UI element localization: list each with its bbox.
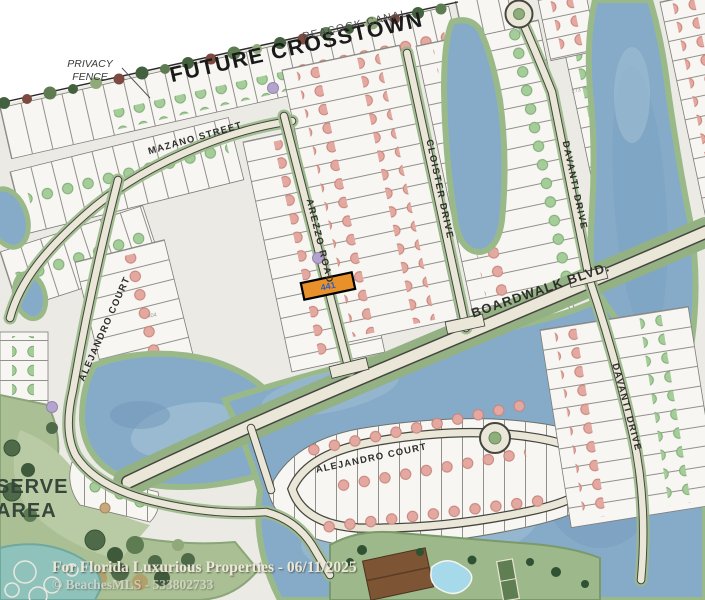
watermark-line2: © BeachesMLS - 533802733 bbox=[52, 577, 213, 592]
watermark-line1: For Florida Luxurious Properties - 06/11… bbox=[52, 559, 357, 576]
cul-de-sac-top bbox=[506, 1, 533, 28]
lake-shade bbox=[110, 401, 170, 429]
privacy-fence-label-2: FENCE bbox=[72, 71, 109, 83]
privacy-fence-label-1: PRIVACY bbox=[67, 58, 114, 70]
cul-de-sac-island bbox=[489, 432, 501, 444]
plat-map-image: 441 MAZANO STREET AREZZO ROAD CLOISTER D… bbox=[0, 0, 705, 600]
plat-map-svg: 441 MAZANO STREET AREZZO ROAD CLOISTER D… bbox=[0, 0, 705, 600]
lake-highlight bbox=[614, 47, 650, 143]
preserve-label-2: AREA bbox=[0, 500, 57, 522]
preserve-label-1: SERVE bbox=[0, 476, 68, 498]
